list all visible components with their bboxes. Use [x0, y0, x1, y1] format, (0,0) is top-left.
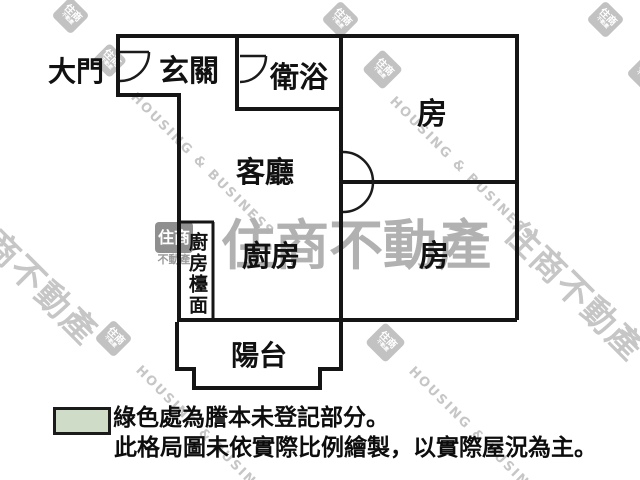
kitchen-counter-label: 廚房檯面: [186, 232, 206, 316]
living-room-label: 客廳: [236, 157, 294, 187]
bedroom-bottom-label: 房: [419, 241, 449, 273]
legend-line-1: 綠色處為謄本未登記部分。: [113, 407, 389, 430]
bathroom-door-swing-icon: [240, 56, 266, 82]
legend-green-swatch: [53, 407, 111, 435]
main-door-swing-icon: [120, 52, 149, 81]
bedroom-top-label: 房: [417, 99, 447, 131]
floorplan-image: 住商不動產 住商不動產 住商不動產 住商不動產 住商不動產 住商不動產 住商不動…: [0, 0, 640, 480]
legend-line-2: 此格局圖未依實際比例繪製，以實際屋況為主。: [114, 437, 597, 460]
kitchen-label: 廚房: [242, 241, 300, 271]
main-door-label: 大門: [48, 57, 104, 86]
entryway-label: 玄關: [159, 56, 219, 88]
bathroom-label: 衛浴: [270, 62, 328, 92]
balcony-label: 陽台: [231, 341, 287, 370]
